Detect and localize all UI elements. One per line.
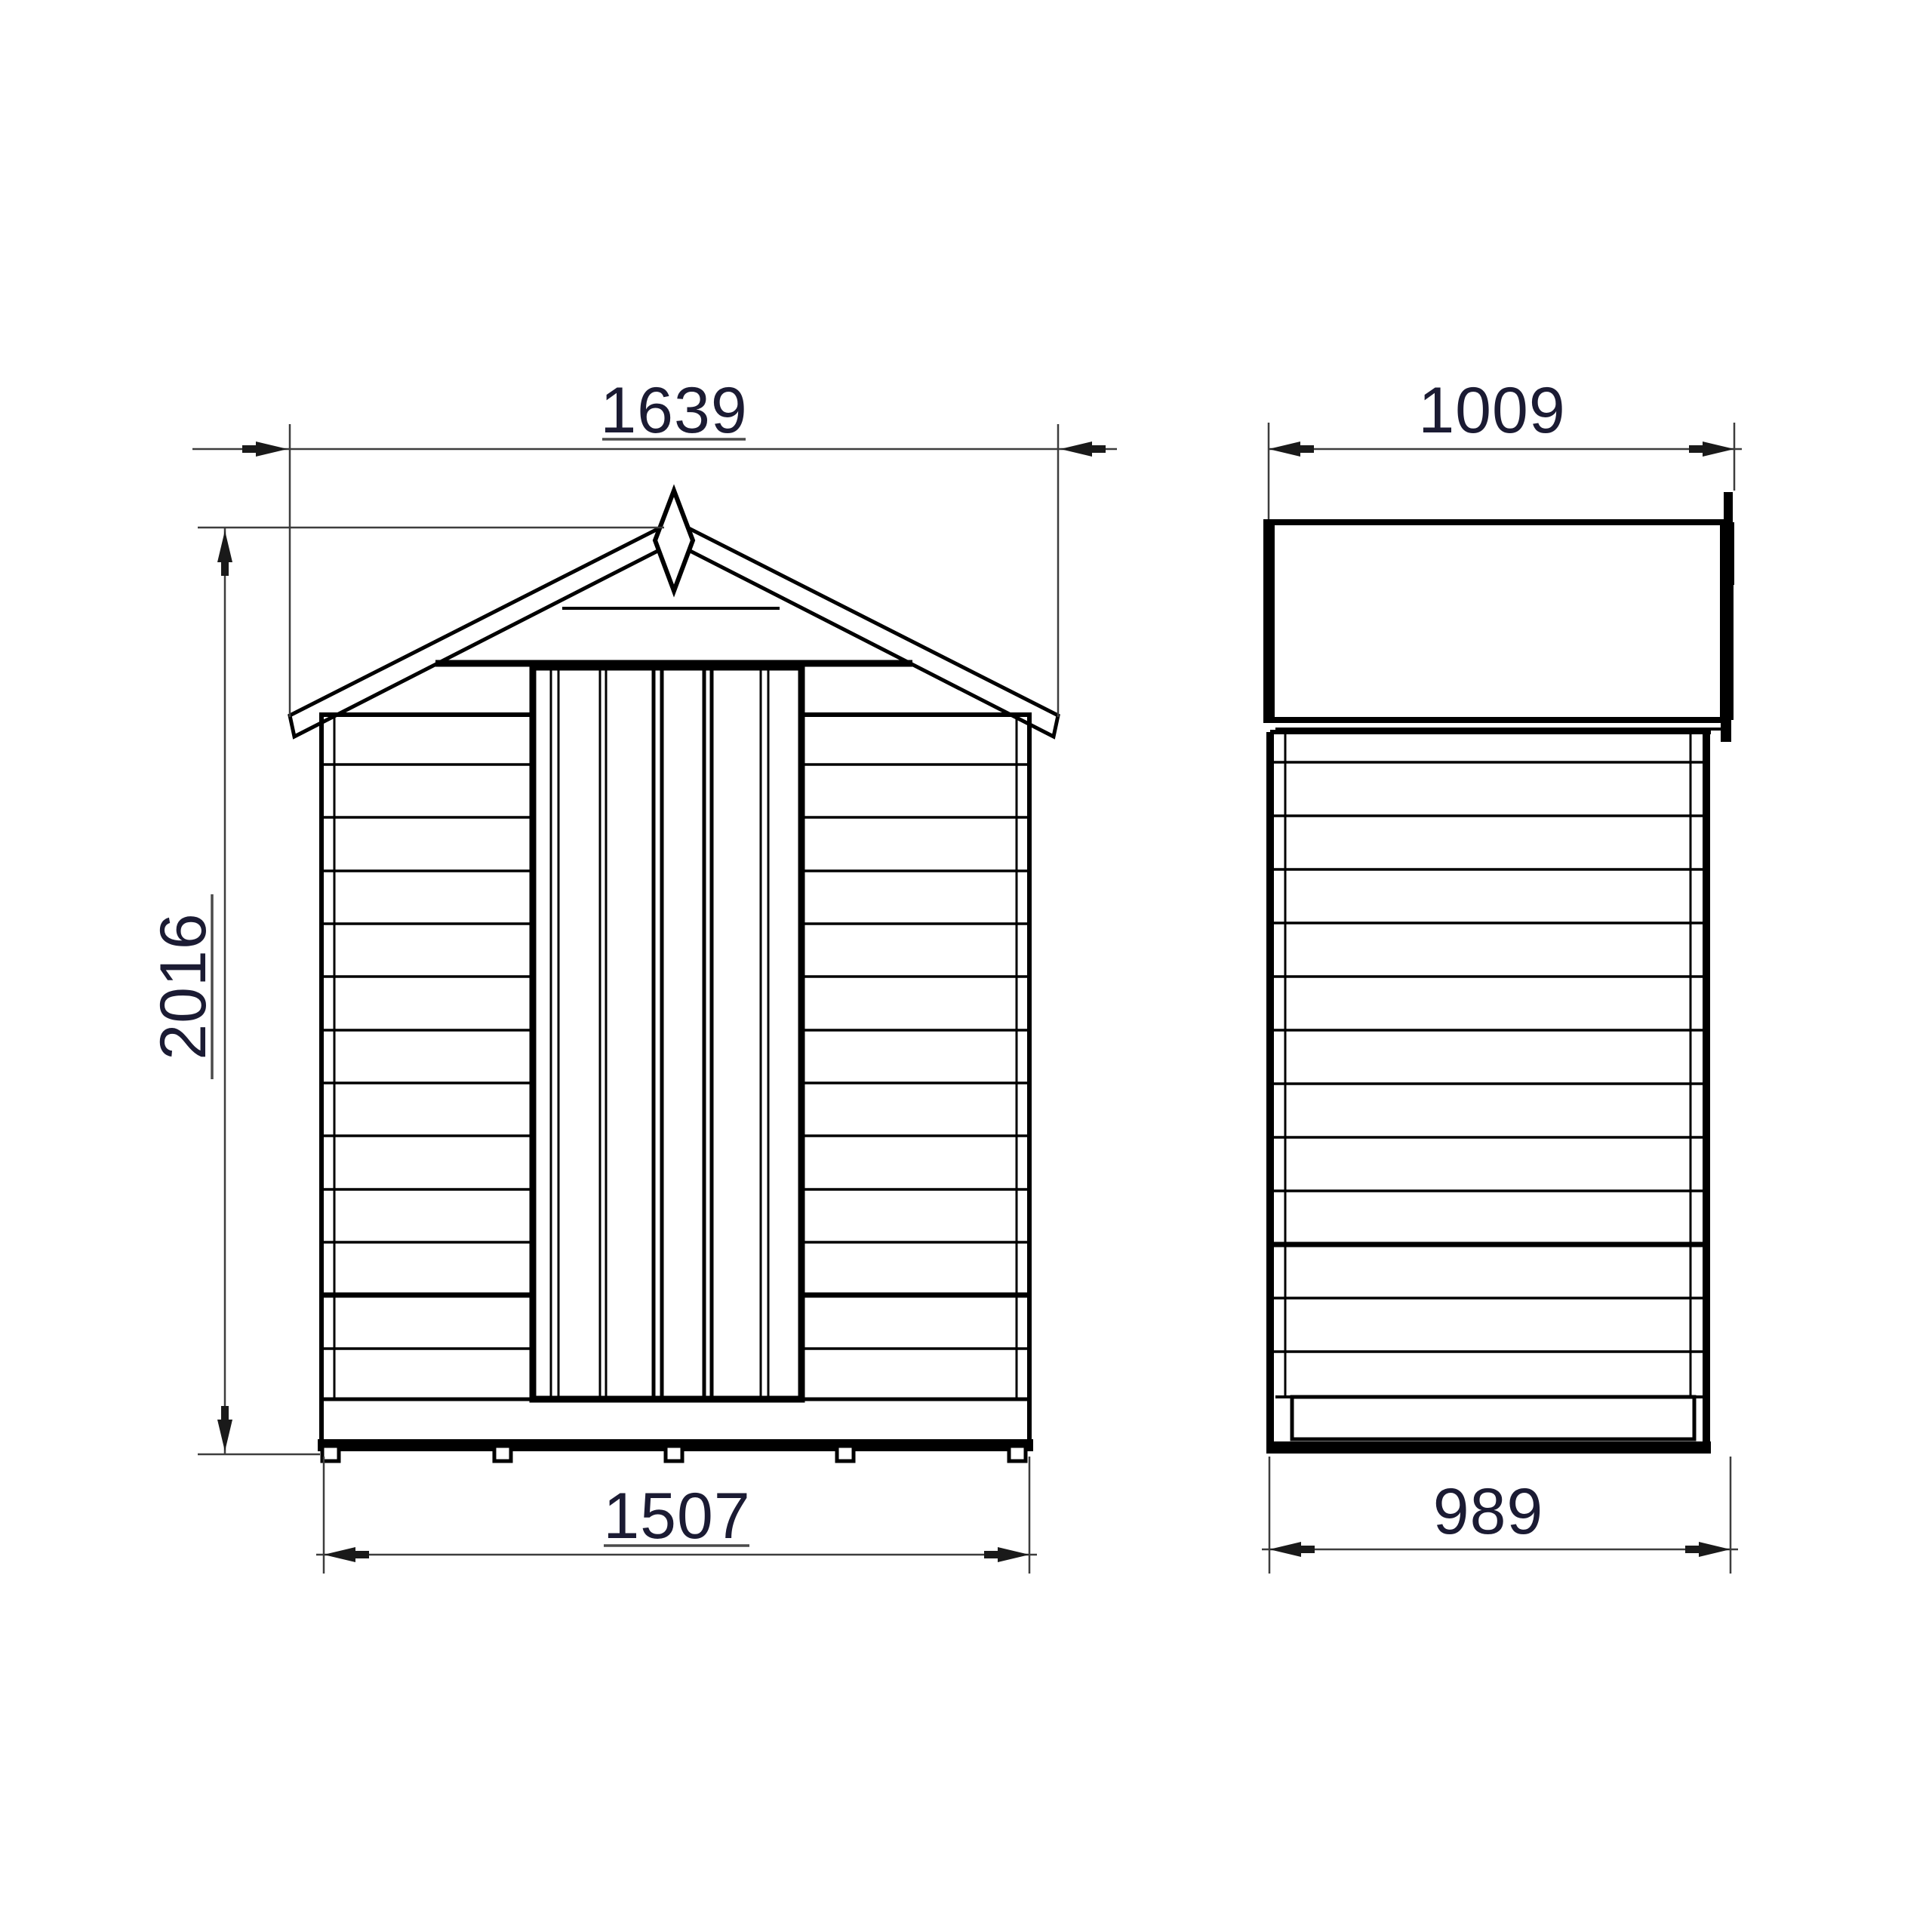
front-door: [533, 667, 801, 1399]
dimension-base-width: 1507: [316, 1457, 1037, 1574]
dimension-value-base-depth: 989: [1433, 1475, 1544, 1548]
base-foot: [1009, 1446, 1026, 1461]
dimension-value-height: 2016: [147, 912, 220, 1060]
base-foot: [494, 1446, 511, 1461]
dimension-base-depth: 989: [1262, 1457, 1738, 1574]
arrowhead: [324, 1547, 369, 1562]
arrowhead: [1060, 441, 1106, 457]
side-cladding: [1274, 762, 1703, 1352]
dimension-value-roof-depth: 1009: [1418, 374, 1565, 447]
side-walls: [1270, 732, 1711, 1451]
arrowhead: [1685, 1542, 1730, 1557]
side-base: [1266, 1397, 1711, 1447]
dimension-value-roof-width: 1639: [600, 374, 747, 447]
side-barge-board: [1721, 492, 1734, 742]
barge-step-upper: [1721, 522, 1734, 585]
base-foot: [837, 1446, 854, 1461]
arrowhead: [217, 531, 232, 576]
base-foot: [666, 1446, 682, 1461]
drawing-canvas: 1639 2016 1507 1009 989: [0, 0, 1932, 1932]
roof-finial-diamond: [655, 491, 693, 591]
arrowhead: [984, 1547, 1029, 1562]
side-roof-panel: [1266, 522, 1723, 720]
arrowhead: [1689, 441, 1734, 457]
dimension-roof-depth: 1009: [1269, 374, 1742, 519]
base-foot: [322, 1446, 339, 1461]
barge-step-lower: [1721, 720, 1731, 742]
shed-technical-drawing: 1639 2016 1507 1009 989: [0, 0, 1932, 1932]
front-view: [290, 491, 1058, 1461]
front-base: [318, 1399, 1033, 1461]
floor-bearer: [1292, 1397, 1694, 1439]
arrowhead: [1269, 1542, 1315, 1557]
side-view: [1266, 492, 1734, 1451]
dimension-value-base-width: 1507: [603, 1480, 750, 1552]
arrowhead: [242, 441, 288, 457]
arrowhead: [1269, 441, 1314, 457]
rear-finial-edge: [1724, 492, 1733, 525]
barge-step-mid: [1722, 585, 1734, 720]
arrowhead: [217, 1406, 232, 1451]
